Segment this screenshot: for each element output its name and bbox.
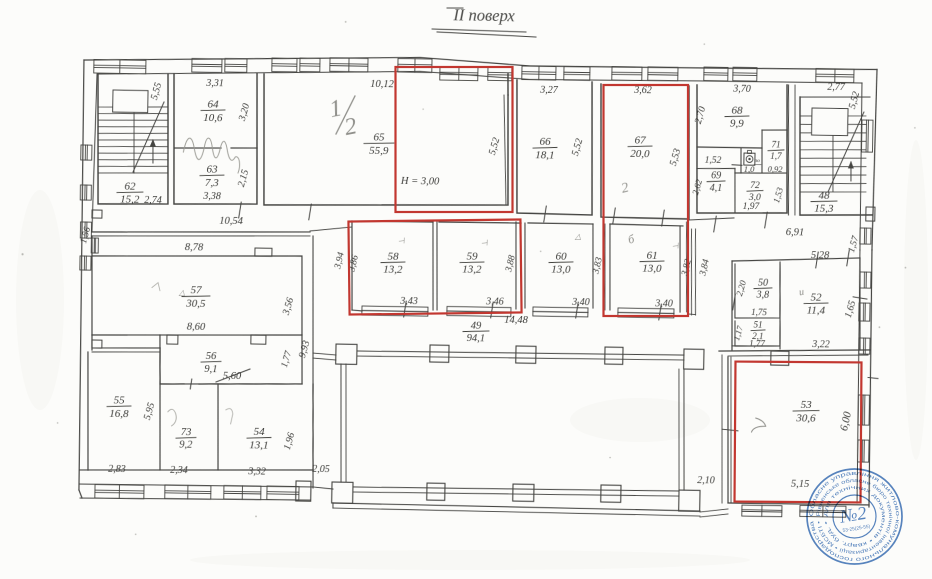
svg-text:30,5: 30,5: [185, 298, 206, 310]
svg-text:69: 69: [711, 170, 721, 181]
svg-text:52: 52: [811, 291, 823, 303]
svg-text:8,60: 8,60: [187, 322, 206, 333]
svg-text:5,15: 5,15: [791, 479, 810, 490]
svg-text:15,3: 15,3: [814, 203, 834, 215]
svg-text:59: 59: [466, 250, 478, 262]
svg-text:15,2: 15,2: [120, 194, 140, 206]
svg-text:51: 51: [754, 319, 763, 329]
svg-text:зо: зо: [754, 158, 760, 164]
svg-text:3,27: 3,27: [539, 85, 559, 96]
svg-text:56: 56: [206, 351, 217, 362]
svg-text:18,1: 18,1: [535, 149, 554, 161]
svg-text:13,0: 13,0: [642, 263, 662, 275]
svg-text:71: 71: [772, 139, 781, 149]
svg-text:№2: №2: [838, 504, 868, 528]
svg-text:65: 65: [373, 131, 385, 143]
svg-text:14,48: 14,48: [504, 315, 529, 326]
svg-text:10,54: 10,54: [219, 216, 244, 227]
svg-text:94,1: 94,1: [467, 333, 486, 344]
svg-text:9,2: 9,2: [179, 440, 193, 451]
svg-text:9,9: 9,9: [730, 118, 744, 130]
svg-text:55,9: 55,9: [369, 145, 389, 157]
svg-text:3,40: 3,40: [571, 297, 590, 308]
svg-text:64: 64: [207, 98, 219, 110]
svg-text:49: 49: [471, 320, 482, 331]
svg-text:54: 54: [253, 426, 265, 438]
svg-text:66: 66: [539, 136, 551, 148]
svg-text:48: 48: [818, 189, 830, 201]
svg-text:16,8: 16,8: [109, 408, 129, 420]
svg-text:1,52: 1,52: [705, 156, 722, 166]
svg-text:13,2: 13,2: [462, 264, 482, 276]
svg-text:2,77: 2,77: [827, 82, 846, 93]
svg-text:3,32: 3,32: [247, 466, 266, 477]
svg-text:3,46: 3,46: [485, 296, 504, 307]
svg-text:20,0: 20,0: [630, 148, 650, 160]
svg-text:55: 55: [114, 394, 126, 406]
svg-text:2,10: 2,10: [697, 475, 715, 486]
svg-text:57: 57: [190, 284, 202, 296]
svg-text:62: 62: [124, 180, 136, 192]
svg-text:60: 60: [555, 250, 567, 262]
svg-text:3,43: 3,43: [399, 296, 418, 307]
svg-text:8,78: 8,78: [185, 242, 204, 253]
svg-text:13,2: 13,2: [383, 264, 403, 276]
svg-text:1,77: 1,77: [749, 338, 765, 348]
svg-text:1,75: 1,75: [751, 307, 767, 317]
svg-text:61: 61: [647, 249, 658, 261]
svg-text:68: 68: [731, 104, 743, 116]
svg-text:5,60: 5,60: [223, 371, 242, 382]
svg-text:10,12: 10,12: [370, 79, 395, 90]
svg-text:58: 58: [387, 250, 399, 262]
svg-text:13,1: 13,1: [249, 439, 268, 451]
svg-text:0,92: 0,92: [768, 164, 784, 174]
svg-text:1,0: 1,0: [744, 164, 756, 174]
svg-text:72: 72: [750, 181, 760, 191]
svg-text:63: 63: [206, 163, 218, 175]
svg-text:30,6: 30,6: [795, 412, 816, 424]
svg-text:10,6: 10,6: [203, 112, 223, 124]
svg-text:67: 67: [635, 134, 647, 146]
svg-text:1,7: 1,7: [770, 151, 782, 161]
svg-text:3,40: 3,40: [654, 298, 673, 309]
svg-text:5,28: 5,28: [811, 250, 830, 261]
svg-text:13,0: 13,0: [551, 264, 571, 276]
svg-text:△: △: [178, 288, 185, 297]
svg-text:11,4: 11,4: [807, 305, 826, 317]
svg-text:3,22: 3,22: [811, 339, 830, 350]
svg-text:3,70: 3,70: [732, 84, 751, 95]
svg-text:3,31: 3,31: [205, 78, 224, 89]
svg-text:3,38: 3,38: [202, 191, 221, 202]
svg-text:2,74: 2,74: [144, 195, 162, 206]
svg-text:1,97: 1,97: [743, 202, 761, 212]
svg-text:3,8: 3,8: [756, 290, 770, 301]
svg-text:△: △: [574, 232, 581, 241]
svg-text:53: 53: [801, 399, 813, 411]
svg-text:9,1: 9,1: [204, 364, 217, 375]
svg-text:6,91: 6,91: [786, 227, 805, 238]
svg-text:4,1: 4,1: [710, 183, 723, 194]
svg-text:7,3: 7,3: [205, 177, 219, 189]
svg-text:50: 50: [758, 277, 768, 288]
svg-text:Н = 3,00: Н = 3,00: [400, 176, 440, 188]
svg-text:3,62: 3,62: [633, 85, 652, 96]
svg-text:2,05: 2,05: [312, 464, 330, 475]
svg-text:73: 73: [181, 427, 192, 438]
